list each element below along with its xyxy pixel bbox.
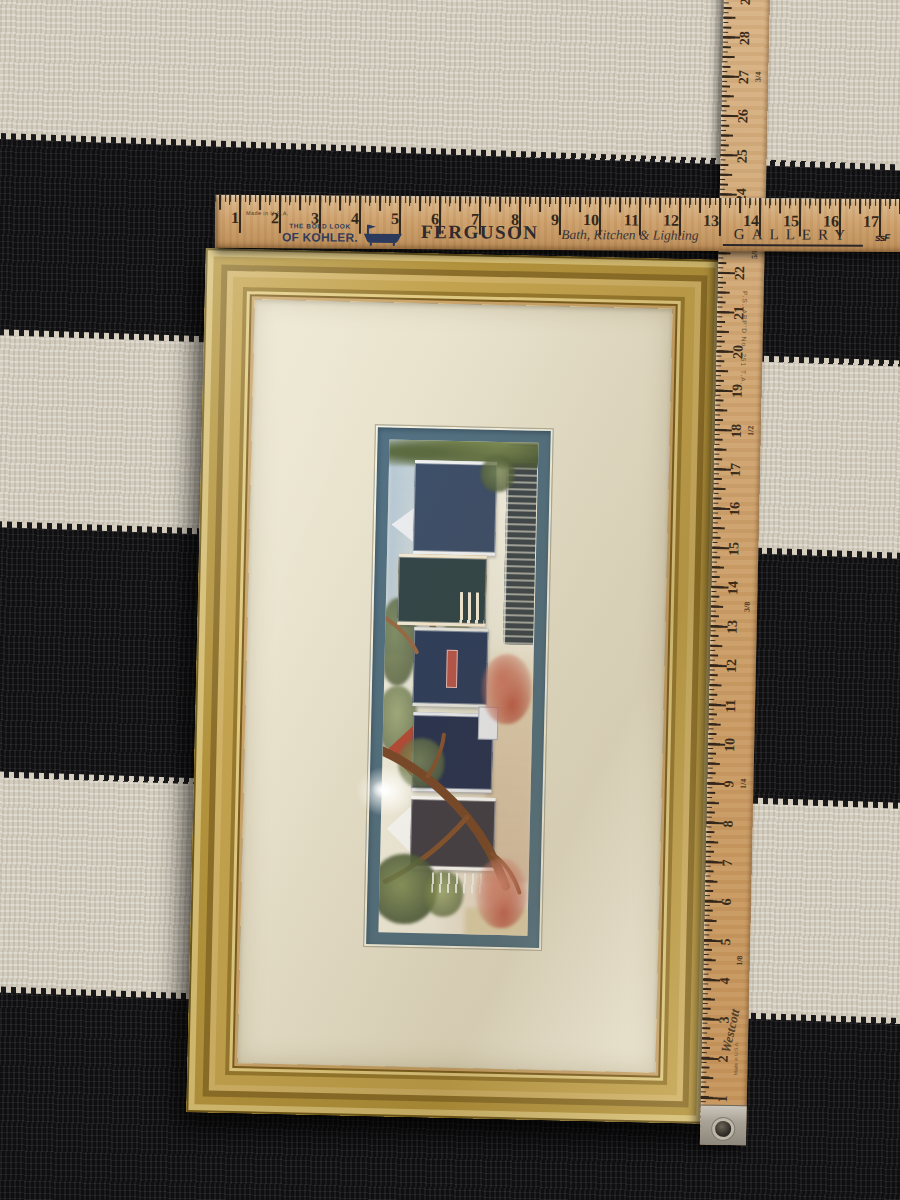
yardstick-inch-number: 27 [736, 64, 753, 90]
yardstick-inch-number: 18 [729, 417, 746, 443]
kohler-logo-line2: OF KOHLER. [279, 230, 361, 245]
yardstick-inch-number: 15 [726, 535, 743, 561]
ruler-made-in: Made in U.S.A. [246, 210, 289, 216]
yardstick-inch-number: 14 [725, 575, 742, 601]
yardstick-yard-fraction: 3/4 [754, 68, 763, 86]
yardstick-inch-number: 11 [723, 692, 740, 718]
bathtub-icon [363, 224, 405, 246]
yardstick-yard-fraction: 1/4 [739, 775, 748, 793]
yardstick-inch-number: 17 [728, 457, 745, 483]
yardstick-yard-fraction: 1/2 [746, 421, 755, 439]
kohler-logo-line1: THE BOLD LOOK [279, 222, 361, 230]
ferguson-logo: FERGUSON [421, 221, 537, 244]
hang-hole-grommet [715, 1121, 731, 1137]
yardstick-inch-number: 6 [719, 889, 736, 915]
kohler-logo: THE BOLD LOOK OF KOHLER. [279, 222, 361, 245]
yardstick-inch-number: 10 [722, 732, 739, 758]
yardstick-inch-number: 4 [717, 968, 734, 994]
gallery-text: GALLERY [723, 226, 863, 247]
yardstick-inch-number: 29 [738, 0, 755, 12]
partial-right-logo: ssF [875, 232, 889, 243]
yardstick-approval-text: P.S. APP'D No. 251 T.A. [740, 291, 749, 386]
ruler-inch-number: 1 [213, 209, 239, 227]
yardstick-inch-number: 7 [719, 850, 736, 876]
photo-stage: 1234567891011121314151617181920212223242… [0, 0, 900, 1200]
yardstick-inch-number: 16 [727, 496, 744, 522]
yardstick-inch-number: 28 [737, 25, 754, 51]
print-window-teal-mat [364, 425, 553, 950]
yardstick-yard-fraction: 3/8 [742, 598, 751, 616]
yardstick-made-in: Made in U.S.A. [732, 1041, 739, 1075]
yardstick-inch-number: 26 [735, 103, 752, 129]
yardstick-yard-fraction: 1/8 [735, 952, 744, 970]
yardstick-inch-number: 5 [718, 928, 735, 954]
yardstick-inch-number: 8 [720, 810, 737, 836]
yardstick-metal-tip [700, 1104, 747, 1145]
watercolor-print [378, 439, 538, 935]
ferguson-tagline: Bath, Kitchen & Lighting [557, 227, 703, 244]
cream-mat [237, 299, 672, 1072]
yardstick-inch-number: 13 [724, 614, 741, 640]
yardstick-inch-number: 12 [724, 653, 741, 679]
gold-picture-frame [186, 248, 723, 1124]
yardstick-inch-number: 9 [721, 771, 738, 797]
ferguson-advertising-ruler: 1234567891011121314151617 Made in U.S.A.… [215, 195, 900, 252]
yardstick-inch-number: 25 [734, 142, 751, 168]
yardstick-inch-number: 22 [732, 260, 749, 286]
